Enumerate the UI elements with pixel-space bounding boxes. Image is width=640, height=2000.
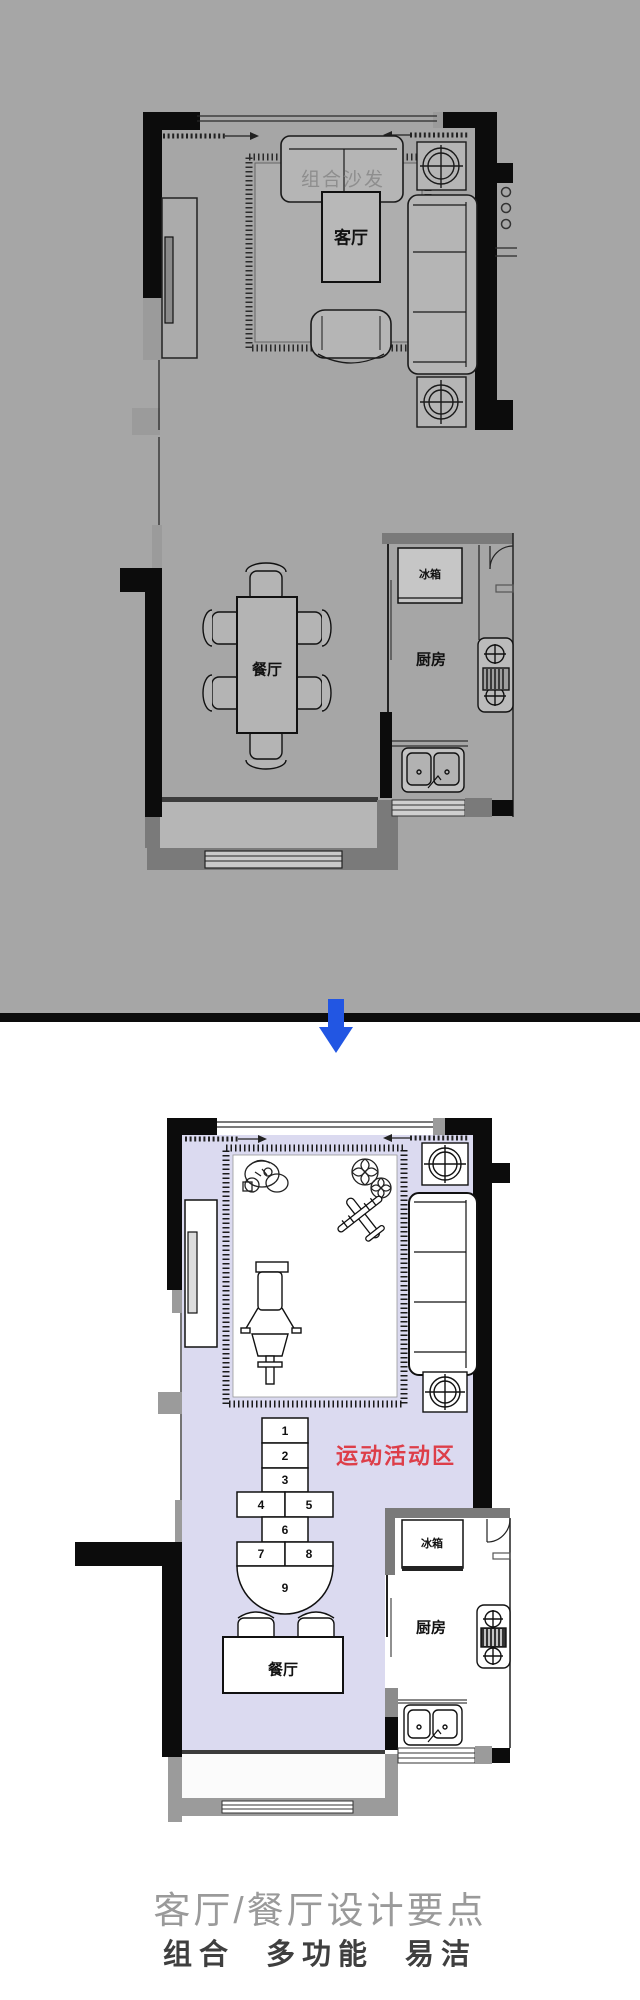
kitchen-before: 冰箱 厨房: [380, 533, 513, 817]
tv-cabinet-after: [185, 1200, 217, 1347]
balcony-after: [168, 1750, 398, 1822]
svg-text:6: 6: [282, 1523, 289, 1537]
svg-text:9: 9: [282, 1581, 289, 1595]
activity-zone-label: 运动活动区: [336, 1444, 456, 1469]
fridge-before: 冰箱: [398, 548, 462, 603]
tv-icon-after: [188, 1232, 197, 1313]
armchair-before: [311, 310, 391, 363]
kitchen-label-after: 厨房: [416, 1619, 446, 1637]
dining-room-label-before: 餐厅: [252, 661, 282, 679]
svg-text:1: 1: [282, 1424, 289, 1438]
living-room-label: 客厅: [333, 228, 368, 248]
play-mat: [226, 1148, 404, 1404]
dining-room-label-after: 餐厅: [268, 1661, 298, 1679]
stove-after: [477, 1605, 510, 1668]
balcony-window-after: [222, 1801, 353, 1813]
floorplan-after-section: 1 2 3 4 5 6 7 8 9 运动活动区 餐厅: [0, 1022, 640, 2000]
page-subtitle: 组合 多功能 易洁: [0, 1931, 640, 1973]
balcony-window: [205, 851, 342, 868]
svg-text:8: 8: [306, 1547, 313, 1561]
sofa-label: 组合沙发: [301, 169, 385, 191]
fridge-label-after: 冰箱: [421, 1536, 443, 1550]
balcony-before: [145, 797, 398, 870]
svg-text:5: 5: [306, 1498, 313, 1512]
kitchen-label-before: 厨房: [416, 651, 446, 669]
side-table-lamp-bottom-after: [423, 1372, 467, 1412]
stove-before: [478, 638, 513, 712]
fridge-label-before: 冰箱: [419, 567, 441, 581]
sink-after: [398, 1700, 467, 1745]
svg-text:4: 4: [258, 1498, 265, 1512]
arrow-down-icon: [318, 999, 354, 1054]
curtain-left-icon: [163, 132, 259, 140]
kitchen-window-after: [398, 1746, 510, 1764]
fridge-after: 冰箱: [402, 1520, 463, 1571]
tv-cabinet-before: [162, 198, 197, 358]
sofa-after: [409, 1193, 477, 1375]
tv-icon: [165, 237, 173, 323]
page: 组合沙发 客厅: [0, 0, 640, 2000]
svg-text:7: 7: [258, 1547, 265, 1561]
kitchen-door-before: [490, 546, 513, 592]
side-table-lamp-top-after: [422, 1143, 468, 1185]
coffee-table-before: 客厅: [322, 192, 380, 282]
page-title: 客厅/餐厅设计要点: [0, 1880, 640, 1934]
svg-text:3: 3: [282, 1473, 289, 1487]
door-hinge-dots: [502, 188, 511, 229]
sink-before: [392, 741, 468, 792]
floorplan-before: 组合沙发 客厅: [0, 0, 640, 1013]
side-table-lamp-top: [417, 142, 466, 190]
kitchen-window-before: [392, 798, 513, 817]
floorplan-before-section: 组合沙发 客厅: [0, 0, 640, 1013]
svg-text:2: 2: [282, 1449, 289, 1463]
sofa-right-before: [408, 195, 477, 374]
side-table-lamp-bottom: [417, 377, 466, 427]
floorplan-after: 1 2 3 4 5 6 7 8 9 运动活动区 餐厅: [0, 1022, 640, 1822]
